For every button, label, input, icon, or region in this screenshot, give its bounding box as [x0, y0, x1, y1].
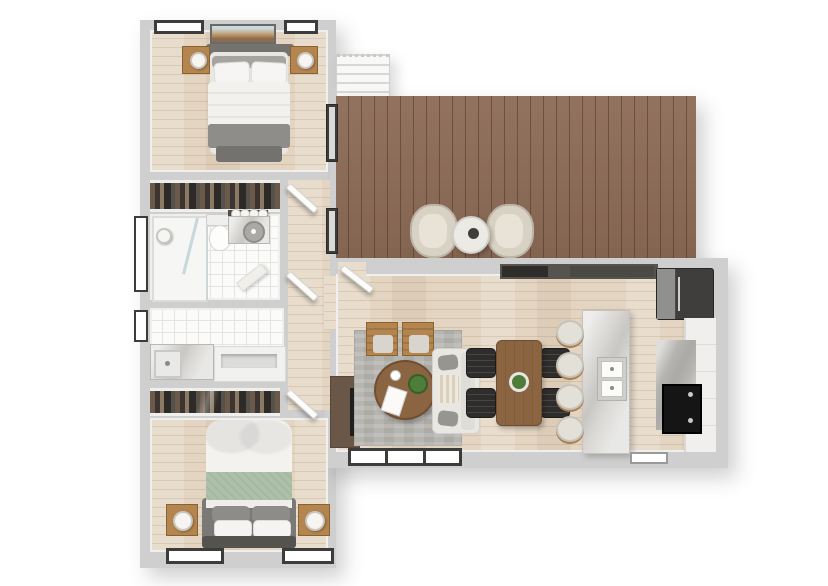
- sink-drain: [610, 367, 614, 371]
- deck-side-table: [452, 216, 490, 254]
- bar-stool: [556, 320, 584, 346]
- lounge-chair: [486, 204, 534, 258]
- window: [154, 20, 204, 34]
- dining-chair: [466, 388, 496, 418]
- deck-wall-window: [326, 208, 338, 254]
- window: [284, 20, 318, 34]
- armchair-cushion: [373, 335, 393, 353]
- refrigerator-handle: [678, 277, 680, 311]
- window: [166, 548, 224, 564]
- range-knob: [688, 418, 693, 423]
- armchair: [402, 322, 434, 356]
- utility-sink: [154, 350, 182, 378]
- window: [282, 548, 334, 564]
- kitchen-window: [630, 452, 668, 464]
- counter-appliance: [502, 266, 548, 277]
- sofa-pillow: [437, 354, 458, 371]
- wall-counter: [500, 264, 658, 279]
- sage-throw-blanket: [206, 472, 292, 502]
- sink-drain: [251, 229, 256, 234]
- lounge-chair: [410, 204, 458, 258]
- sink-drain: [610, 386, 614, 390]
- table-lamp: [297, 52, 314, 69]
- bar-stool: [556, 416, 584, 442]
- foot-blanket: [208, 124, 290, 148]
- wall-art: [210, 24, 276, 44]
- faucet: [165, 361, 170, 366]
- table-lamp: [173, 511, 193, 531]
- bar-stool: [556, 384, 584, 410]
- bathroom-window: [134, 216, 148, 292]
- coffee-cup: [390, 370, 401, 381]
- range-knob: [688, 392, 693, 397]
- table-lamp: [190, 52, 207, 69]
- armchair: [366, 322, 398, 356]
- double-sink: [597, 357, 627, 401]
- centerpiece-plant: [509, 372, 529, 392]
- refrigerator-door: [657, 269, 676, 319]
- window-mullion: [385, 451, 388, 463]
- closet-top-interior: [150, 180, 280, 212]
- sofa-pillow: [437, 410, 458, 427]
- table-lamp: [305, 511, 325, 531]
- counter-top: [570, 266, 654, 277]
- utility-window: [134, 310, 148, 342]
- kitchen-island: [582, 310, 630, 454]
- hallway-living-opening: [324, 276, 336, 330]
- headboard: [202, 536, 296, 548]
- foot-bench: [216, 146, 282, 162]
- living-triple-window: [348, 448, 462, 466]
- closet-bottom-interior: [150, 388, 280, 416]
- throw-blanket: [437, 375, 459, 403]
- refrigerator: [656, 268, 714, 320]
- potted-plant: [408, 374, 428, 394]
- sink-basin: [601, 380, 623, 397]
- deck-wall-window: [326, 104, 338, 162]
- open-cabinet: [214, 346, 286, 382]
- range-cooktop: [662, 384, 702, 434]
- lounge-chair-cushion: [495, 214, 523, 248]
- dining-chair: [466, 348, 496, 378]
- magazine: [380, 386, 407, 417]
- armchair-cushion: [409, 335, 429, 353]
- floor-plan-canvas: [0, 0, 828, 586]
- shower-head: [156, 228, 172, 244]
- sink-basin: [601, 361, 623, 378]
- cabinet-shelf: [221, 354, 277, 368]
- bar-stool: [556, 352, 584, 378]
- vanity-sink: [243, 221, 265, 243]
- coffee-table: [374, 360, 436, 420]
- duvet: [208, 82, 290, 128]
- lounge-chair-cushion: [419, 214, 447, 248]
- duvet: [206, 420, 292, 476]
- dining-table: [496, 340, 542, 426]
- mirror-door-reflection: [150, 391, 280, 413]
- deck-table-decor: [468, 228, 479, 239]
- window-mullion: [423, 451, 426, 463]
